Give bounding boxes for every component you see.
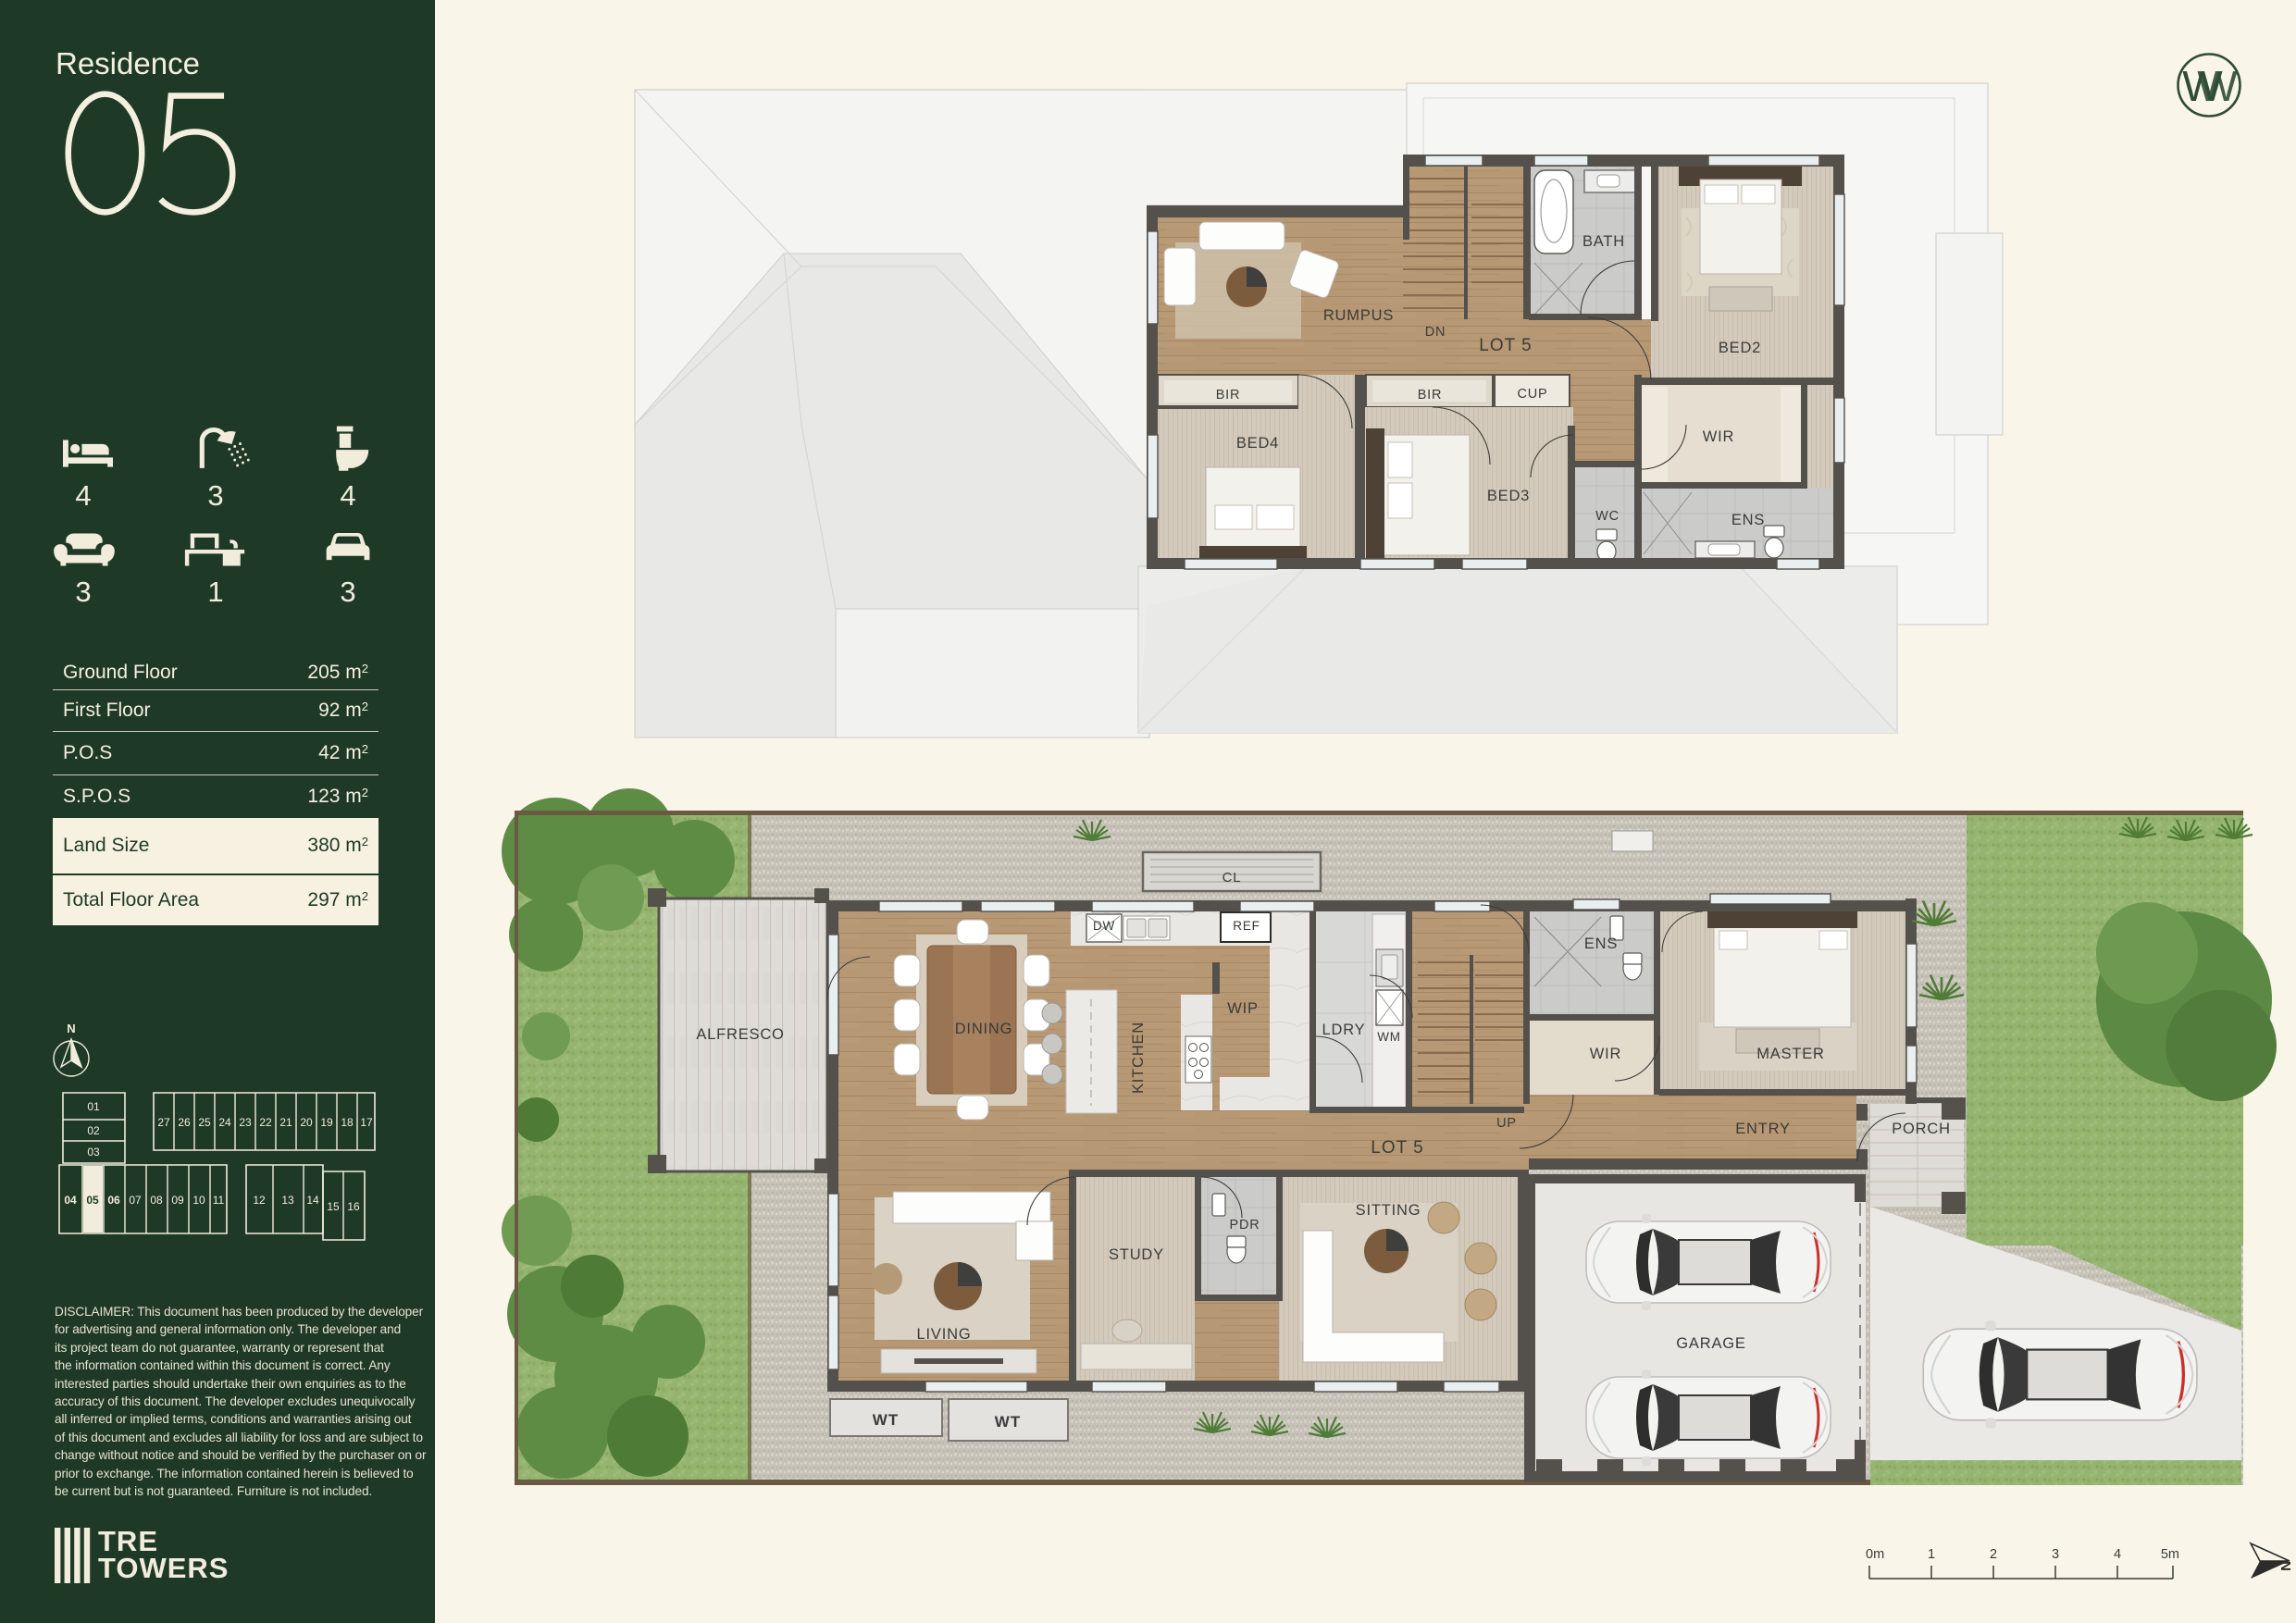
svg-text:ENTRY: ENTRY xyxy=(1735,1121,1791,1137)
svg-text:WIP: WIP xyxy=(1227,1000,1259,1017)
svg-text:DW: DW xyxy=(1093,919,1115,933)
svg-text:PDR: PDR xyxy=(1229,1218,1260,1233)
svg-text:REF: REF xyxy=(1233,919,1260,933)
svg-text:N: N xyxy=(2277,1561,2293,1571)
svg-text:4: 4 xyxy=(2114,1547,2121,1562)
svg-text:BED2: BED2 xyxy=(1719,340,1761,356)
svg-text:KITCHEN: KITCHEN xyxy=(1130,1022,1147,1094)
svg-text:GARAGE: GARAGE xyxy=(1676,1335,1745,1352)
svg-text:BIR: BIR xyxy=(1418,388,1443,403)
svg-text:WT: WT xyxy=(995,1413,1021,1431)
svg-text:BED4: BED4 xyxy=(1236,435,1279,452)
svg-text:WIR: WIR xyxy=(1590,1046,1621,1062)
svg-text:PORCH: PORCH xyxy=(1892,1121,1951,1137)
svg-text:ENS: ENS xyxy=(1731,512,1765,528)
svg-text:BIR: BIR xyxy=(1216,388,1241,403)
svg-text:1: 1 xyxy=(1928,1547,1935,1562)
svg-text:DINING: DINING xyxy=(955,1021,1013,1037)
svg-text:0m: 0m xyxy=(1866,1547,1884,1562)
svg-text:LDRY: LDRY xyxy=(1322,1022,1366,1038)
svg-text:CUP: CUP xyxy=(1517,387,1547,402)
svg-text:WT: WT xyxy=(873,1411,899,1429)
svg-text:RUMPUS: RUMPUS xyxy=(1323,307,1394,324)
svg-text:BATH: BATH xyxy=(1582,233,1625,250)
svg-text:SITTING: SITTING xyxy=(1356,1202,1421,1219)
svg-text:WC: WC xyxy=(1595,509,1620,524)
svg-text:BED3: BED3 xyxy=(1487,488,1530,504)
svg-text:2: 2 xyxy=(1990,1547,1997,1562)
svg-text:ALFRESCO: ALFRESCO xyxy=(696,1026,784,1043)
svg-text:DN: DN xyxy=(1425,325,1446,340)
svg-text:LOT 5: LOT 5 xyxy=(1371,1138,1423,1158)
svg-text:ENS: ENS xyxy=(1584,935,1618,952)
svg-text:CL: CL xyxy=(1222,870,1242,886)
svg-text:W: W xyxy=(2197,62,2238,110)
svg-text:LIVING: LIVING xyxy=(917,1326,972,1343)
svg-text:MASTER: MASTER xyxy=(1756,1046,1825,1062)
svg-text:STUDY: STUDY xyxy=(1109,1246,1164,1263)
svg-text:WM: WM xyxy=(1377,1030,1401,1044)
svg-text:3: 3 xyxy=(2052,1547,2059,1562)
svg-text:5m: 5m xyxy=(2161,1547,2179,1562)
svg-text:WIR: WIR xyxy=(1703,428,1734,445)
svg-text:UP: UP xyxy=(1496,1116,1517,1131)
svg-text:LOT 5: LOT 5 xyxy=(1479,336,1532,355)
